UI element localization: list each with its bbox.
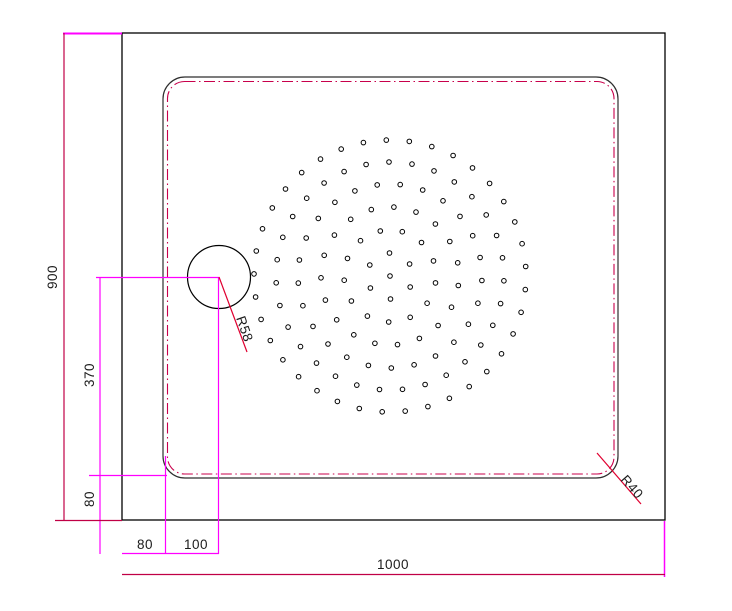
anti-slip-dot <box>426 404 431 409</box>
anti-slip-dot <box>388 274 393 279</box>
anti-slip-dot <box>253 295 258 300</box>
label-overall-height: 900 <box>45 265 60 289</box>
anti-slip-dot <box>268 338 273 343</box>
anti-slip-dot <box>369 207 374 212</box>
anti-slip-dot <box>286 325 291 330</box>
anti-slip-dot <box>332 233 337 238</box>
cad-canvas: 900 370 80 80 100 1000 R58 R40 <box>0 0 732 611</box>
anti-slip-dot <box>452 180 457 185</box>
anti-slip-dot <box>368 286 373 291</box>
anti-slip-dot <box>433 354 438 359</box>
anti-slip-dot <box>352 333 357 338</box>
anti-slip-dot <box>433 281 438 286</box>
anti-slip-dot <box>420 188 425 193</box>
anti-slip-dot <box>470 233 475 238</box>
anti-slip-dot <box>523 287 528 292</box>
anti-slip-dot <box>417 336 422 341</box>
anti-slip-dot <box>519 310 524 315</box>
anti-slip-dot <box>449 305 454 310</box>
anti-slip-dot <box>455 261 460 266</box>
anti-slip-dot <box>458 214 463 219</box>
anti-slip-dot <box>275 257 280 262</box>
anti-slip-dot <box>311 324 316 329</box>
anti-slip-dot <box>304 236 309 241</box>
anti-slip-dot <box>398 182 403 187</box>
anti-slip-dot <box>345 256 350 261</box>
anti-slip-dot <box>323 298 328 303</box>
anti-slip-dot <box>319 276 324 281</box>
anti-slip-dot <box>366 363 371 368</box>
anti-slip-dot <box>431 259 436 264</box>
anti-slip-dot <box>377 387 382 392</box>
anti-slip-dot <box>470 194 475 199</box>
anti-slip-dot <box>318 157 323 162</box>
label-overall-width: 1000 <box>377 557 409 572</box>
anti-slip-dot <box>499 352 504 357</box>
anti-slip-dot <box>520 241 525 246</box>
anti-slip-dot <box>333 200 338 205</box>
anti-slip-dot <box>304 196 309 201</box>
anti-slip-dot <box>387 251 392 256</box>
anti-slip-dot <box>333 374 338 379</box>
anti-slip-dot <box>466 322 471 327</box>
anti-slip-dot <box>407 262 412 267</box>
anti-slip-dot <box>403 409 408 414</box>
anti-slip-dot <box>412 363 417 368</box>
anti-slip-dot <box>361 140 366 145</box>
anti-slip-dot <box>484 213 489 218</box>
anti-slip-dot <box>297 258 302 263</box>
anti-slip-dot <box>389 366 394 371</box>
anti-slip-dot <box>365 314 370 319</box>
anti-slip-dot <box>502 199 507 204</box>
anti-slip-dot <box>301 303 306 308</box>
anti-slip-dot <box>400 229 405 234</box>
anti-slip-dot <box>395 342 400 347</box>
anti-slip-dot <box>479 343 484 348</box>
anti-slip-dot <box>502 279 507 284</box>
anti-slip-dot <box>355 383 360 388</box>
label-drain-offset-b: 100 <box>184 537 208 552</box>
anti-slip-dot <box>281 235 286 240</box>
anti-slip-dot <box>392 205 397 210</box>
anti-slip-dot <box>430 144 435 149</box>
anti-slip-dot <box>500 255 505 260</box>
anti-slip-dot <box>278 303 283 308</box>
anti-slip-dot <box>274 281 279 286</box>
anti-slip-dot <box>410 162 415 167</box>
anti-slip-dot <box>254 249 259 254</box>
anti-slip-dot <box>316 216 321 221</box>
anti-slip-dot <box>423 382 428 387</box>
anti-slip-dot <box>322 253 327 258</box>
anti-slip-dot <box>463 360 468 365</box>
anti-slip-dot <box>283 187 288 192</box>
anti-slip-dot <box>357 406 362 411</box>
anti-slip-dot <box>480 278 485 283</box>
anti-slip-dot <box>494 233 499 238</box>
anti-slip-dot <box>456 283 461 288</box>
anti-slip-dot <box>296 374 301 379</box>
anti-slip-dot <box>523 264 528 269</box>
shower-tray-drawing: 900 370 80 80 100 1000 R58 R40 <box>0 0 732 611</box>
anti-slip-dot <box>373 341 378 346</box>
anti-slip-dot <box>388 297 393 302</box>
anti-slip-dot <box>358 238 363 243</box>
anti-slip-dot <box>436 323 441 328</box>
anti-slip-dot <box>353 189 358 194</box>
anti-slip-dot <box>368 263 373 268</box>
label-drain-centre-height: 370 <box>82 363 97 387</box>
anti-slip-dot <box>349 299 354 304</box>
anti-slip-dot <box>259 317 264 322</box>
anti-slip-dot <box>348 217 353 222</box>
anti-slip-dot <box>441 199 446 204</box>
anti-slip-dot <box>451 153 456 158</box>
anti-slip-dot <box>444 373 449 378</box>
anti-slip-dot <box>342 169 347 174</box>
anti-slip-dot <box>476 301 481 306</box>
anti-slip-dot <box>322 181 327 186</box>
anti-slip-dot <box>380 410 385 415</box>
anti-slip-dot <box>513 220 518 225</box>
anti-slip-dot <box>433 222 438 227</box>
anti-slip-dot <box>414 210 419 215</box>
anti-slip-dot <box>334 318 339 323</box>
anti-slip-dot <box>296 281 301 286</box>
anti-slip-dot <box>339 147 344 152</box>
anti-slip-dot <box>378 229 383 234</box>
anti-slip-dot <box>425 301 430 306</box>
anti-slip-dot <box>345 355 350 360</box>
anti-slip-dot <box>314 361 319 366</box>
anti-slip-dot <box>498 301 503 306</box>
anti-slip-dot <box>315 388 320 393</box>
anti-slip-dot <box>487 181 492 186</box>
anti-slip-dot <box>408 285 413 290</box>
anti-slip-dot <box>478 255 483 260</box>
anti-slip-dot <box>408 315 413 320</box>
anti-slip-dot <box>260 227 265 232</box>
anti-slip-dot <box>467 384 472 389</box>
anti-slip-dot <box>335 399 340 404</box>
anti-slip-dot <box>298 344 303 349</box>
anti-slip-dot <box>400 387 405 392</box>
label-drain-offset-a: 80 <box>137 537 153 552</box>
label-bottom-edge-offset: 80 <box>82 491 97 507</box>
anti-slip-dot <box>375 183 380 188</box>
anti-slip-dot <box>447 396 452 401</box>
anti-slip-dot <box>387 160 392 165</box>
anti-slip-dot <box>470 166 475 171</box>
anti-slip-dot <box>491 323 496 328</box>
anti-slip-dot <box>407 139 412 144</box>
anti-slip-dot <box>448 239 453 244</box>
anti-slip-dot <box>386 320 391 325</box>
anti-slip-dot <box>290 214 295 219</box>
anti-slip-dot <box>432 169 437 174</box>
anti-slip-dot <box>364 162 369 167</box>
anti-slip-dot <box>299 170 304 175</box>
anti-slip-dot <box>326 342 331 347</box>
anti-slip-dot <box>485 369 490 374</box>
anti-slip-dot <box>252 272 257 277</box>
anti-slip-dot <box>419 240 424 245</box>
anti-slip-dot <box>281 358 286 363</box>
anti-slip-dot <box>342 278 347 283</box>
anti-slip-dot <box>452 340 457 345</box>
anti-slip-dot <box>384 138 389 143</box>
anti-slip-dot <box>270 206 275 211</box>
anti-slip-dot <box>511 332 516 337</box>
